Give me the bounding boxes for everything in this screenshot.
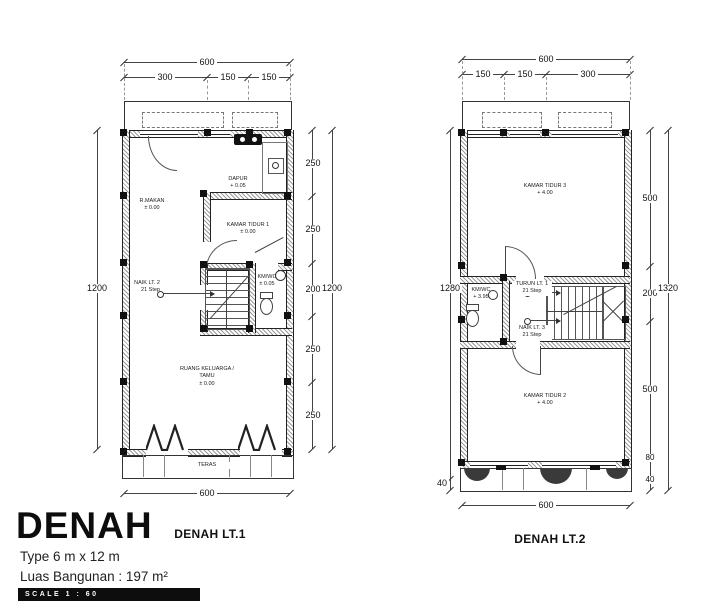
- scale-bar: SCALE 1 : 60: [18, 588, 200, 601]
- floorplan-sheet: NAIK LT. 2 21 Step KM/WC ± 0.05: [0, 0, 720, 611]
- area-line: Luas Bangunan : 197 m²: [20, 569, 168, 584]
- type-line: Type 6 m x 12 m: [20, 549, 120, 564]
- sheet-title: DENAH: [16, 505, 153, 547]
- title-block: DENAH Type 6 m x 12 m Luas Bangunan : 19…: [0, 0, 720, 611]
